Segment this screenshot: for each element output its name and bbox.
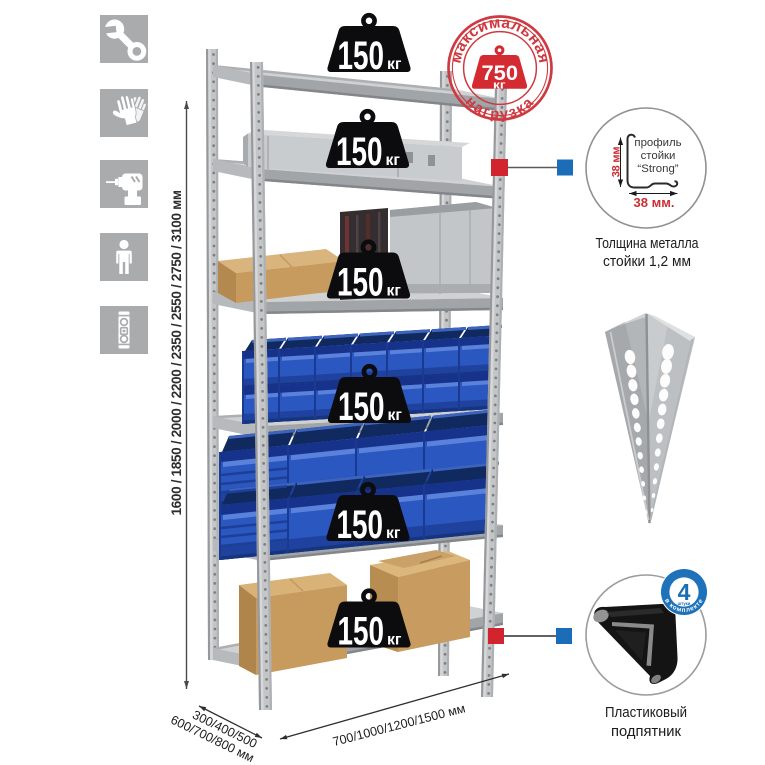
svg-text:38 мм.: 38 мм.: [634, 195, 675, 210]
svg-text:стойки: стойки: [641, 150, 676, 162]
svg-text:“Strong”: “Strong”: [637, 163, 678, 175]
svg-text:кг: кг: [387, 632, 402, 649]
svg-text:кг: кг: [493, 80, 506, 92]
svg-text:150: 150: [336, 130, 383, 174]
svg-text:150: 150: [338, 610, 385, 654]
svg-text:Пластиковый: Пластиковый: [605, 704, 687, 721]
svg-text:штуки: штуки: [678, 601, 691, 606]
svg-text:150: 150: [337, 503, 384, 547]
svg-text:кг: кг: [387, 283, 402, 300]
svg-text:кг: кг: [388, 407, 403, 424]
svg-text:профиль: профиль: [634, 137, 681, 149]
svg-text:150: 150: [337, 261, 384, 305]
svg-text:150: 150: [338, 34, 385, 78]
svg-text:кг: кг: [386, 152, 401, 169]
svg-text:подпятник: подпятник: [611, 723, 681, 740]
svg-text:1600 / 1850 / 2000 / 2200 / 23: 1600 / 1850 / 2000 / 2200 / 2350 / 2550 …: [169, 190, 184, 515]
svg-text:кг: кг: [386, 525, 401, 542]
svg-text:150: 150: [338, 385, 385, 429]
svg-text:кг: кг: [387, 56, 402, 73]
svg-text:38 мм: 38 мм: [611, 147, 623, 178]
svg-text:стойки 1,2 мм: стойки 1,2 мм: [603, 253, 691, 270]
svg-text:Толщина металла: Толщина металла: [596, 235, 699, 252]
